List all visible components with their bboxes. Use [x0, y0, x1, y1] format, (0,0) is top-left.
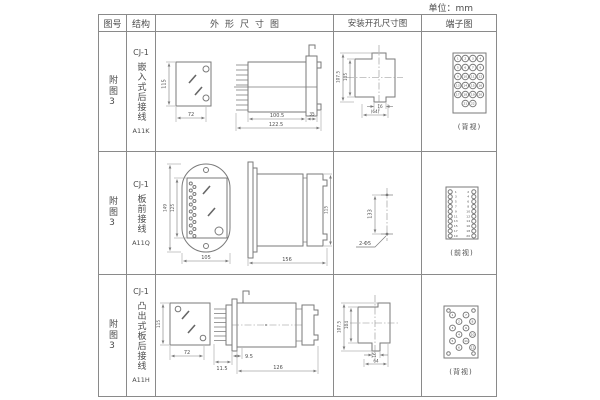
figure-number: 附图3 [106, 196, 119, 230]
svg-text:19: 19 [471, 93, 475, 97]
svg-text:20: 20 [478, 93, 482, 97]
header-row: 图号 结构 外形尺寸图 安装开孔尺寸图 端子图 [99, 15, 497, 32]
svg-text:2: 2 [464, 57, 466, 61]
svg-text:8: 8 [467, 205, 469, 209]
svg-text:12: 12 [478, 75, 482, 79]
install-cell: 133 2-Φ5 [334, 152, 422, 275]
svg-text:2: 2 [467, 190, 469, 194]
svg-text:9: 9 [465, 326, 467, 330]
install-drawing-a11q: 133 2-Φ5 [334, 152, 421, 274]
dim-notch: 16 [372, 352, 377, 358]
svg-text:4: 4 [467, 195, 469, 199]
view-label: (前视) [450, 248, 473, 257]
svg-text:19: 19 [454, 234, 458, 238]
svg-text:16: 16 [478, 84, 482, 88]
svg-text:6: 6 [464, 66, 466, 70]
svg-text:2: 2 [458, 320, 460, 324]
terminal-diagram-a11q: (前视) 1234567891011121314151617181920 [422, 152, 496, 274]
install-cell: 107.5 105 16 (64) [334, 32, 422, 152]
table-row-a11k: 附图3 CJ-1 嵌入式后接线 A11K 115 [99, 32, 497, 152]
dim-front-width: 72 [188, 112, 194, 118]
svg-text:8: 8 [479, 66, 481, 70]
terminal-cell: (背视) 172839410511612 [422, 275, 497, 397]
model-label: CJ-1 [133, 180, 149, 189]
svg-text:4: 4 [458, 333, 460, 337]
dim-hole-spacing: 133 [368, 209, 374, 219]
svg-text:8: 8 [472, 320, 474, 324]
table-row-a11q: 附图3 CJ-1 板前接线 A11Q [99, 152, 497, 275]
structure-label: 板前接线 [135, 194, 148, 234]
svg-text:6: 6 [458, 346, 460, 350]
front-view: 149 125 105 [163, 164, 231, 264]
figure-number: 附图3 [106, 319, 119, 353]
fig-no-cell: 附图3 [99, 32, 127, 152]
dim-depth-body: 100.5 [270, 113, 284, 119]
svg-text:11: 11 [471, 75, 475, 79]
dim-d2: 9.5 [245, 354, 253, 360]
svg-text:14: 14 [466, 219, 470, 223]
svg-text:15: 15 [454, 224, 458, 228]
dim-front-width: 105 [201, 255, 211, 261]
outline-drawing-a11h: 115 72 [156, 275, 333, 396]
svg-text:4: 4 [479, 57, 481, 61]
svg-text:3: 3 [452, 326, 454, 330]
unit-label: 单位：mm [428, 1, 473, 14]
dim-cutout-outer: 107.5 [337, 321, 342, 333]
svg-text:3: 3 [455, 195, 457, 199]
figure-number: 附图3 [106, 75, 119, 109]
svg-text:14: 14 [463, 84, 467, 88]
header-outline: 外形尺寸图 [156, 15, 334, 32]
dim-d1: 11.5 [216, 366, 227, 372]
structure-cell: CJ-1 板前接线 A11Q [127, 152, 156, 275]
structure-cell: CJ-1 嵌入式后接线 A11K [127, 32, 156, 152]
svg-text:22: 22 [471, 102, 475, 106]
type-code: A11Q [132, 239, 150, 247]
svg-text:5: 5 [455, 200, 457, 204]
svg-text:18: 18 [466, 229, 470, 233]
svg-text:10: 10 [471, 333, 475, 337]
svg-text:3: 3 [472, 57, 474, 61]
outline-cell: 115 72 1 [156, 32, 334, 152]
svg-text:7: 7 [472, 66, 474, 70]
svg-text:1: 1 [457, 57, 459, 61]
dim-cutout-outer: 107.5 [336, 71, 341, 83]
outline-cell: 115 72 [156, 275, 334, 397]
type-code: A11H [132, 376, 150, 384]
side-view: 156 115 [248, 162, 332, 266]
terminal-cell: (前视) 1234567891011121314151617181920 [422, 152, 497, 275]
dim-front-height: 115 [156, 320, 161, 328]
svg-text:1: 1 [452, 313, 454, 317]
svg-text:9: 9 [457, 75, 459, 79]
svg-text:17: 17 [456, 93, 460, 97]
svg-text:12: 12 [471, 346, 475, 350]
structure-cell: CJ-1 凸出式板后接线 A11H [127, 275, 156, 397]
dim-depth-total: 122.5 [269, 122, 283, 128]
svg-text:7: 7 [455, 205, 457, 209]
model-label: CJ-1 [133, 287, 149, 296]
dim-length: 156 [282, 257, 292, 263]
type-code: A11K [133, 127, 150, 135]
dim-cutout-inner: 105 [343, 73, 348, 81]
svg-text:9: 9 [455, 209, 457, 213]
dim-side-height: 115 [324, 206, 329, 214]
svg-text:18: 18 [463, 93, 467, 97]
svg-text:1: 1 [455, 190, 457, 194]
dim-cutout-width: (64) [371, 109, 380, 114]
svg-text:13: 13 [454, 219, 458, 223]
svg-text:20: 20 [466, 234, 470, 238]
fig-no-cell: 附图3 [99, 152, 127, 275]
spec-table: 图号 结构 外形尺寸图 安装开孔尺寸图 端子图 附图3 CJ-1 嵌入式后接线 … [98, 14, 497, 397]
dim-flange: 35 [309, 112, 315, 117]
dim-height-inner: 125 [170, 204, 175, 212]
outline-drawing-a11k: 115 72 1 [156, 32, 333, 151]
side-view: 9.5 11.5 126 [214, 291, 318, 374]
outline-drawing-a11q: 149 125 105 [156, 152, 333, 274]
outline-cell: 149 125 105 [156, 152, 334, 275]
svg-text:11: 11 [464, 339, 468, 343]
table-row-a11h: 附图3 CJ-1 凸出式板后接线 A11H 115 [99, 275, 497, 397]
header-terminal: 端子图 [422, 15, 497, 32]
svg-text:21: 21 [463, 102, 467, 106]
terminal-cell: (背视) 12345678910111213141516171819202122 [422, 32, 497, 152]
install-drawing-a11k: 107.5 105 16 (64) [334, 32, 421, 151]
svg-text:17: 17 [454, 229, 458, 233]
structure-label: 凸出式板后接线 [135, 301, 148, 371]
header-fig-no: 图号 [99, 15, 127, 32]
svg-text:13: 13 [456, 84, 460, 88]
model-label: CJ-1 [133, 48, 149, 57]
terminal-diagram-a11k: (背视) 12345678910111213141516171819202122 [422, 32, 496, 151]
dim-cutout-width: 64 [373, 359, 379, 364]
front-view: 115 72 [156, 303, 210, 360]
install-drawing-a11h: 107.5 104 16 64 [334, 275, 421, 396]
header-structure: 结构 [127, 15, 156, 32]
svg-text:12: 12 [466, 214, 470, 218]
install-cell: 107.5 104 16 64 [334, 275, 422, 397]
dim-front-width: 72 [184, 350, 190, 356]
structure-label: 嵌入式后接线 [135, 62, 148, 122]
dim-d3: 126 [273, 365, 283, 371]
svg-text:5: 5 [457, 66, 459, 70]
svg-text:10: 10 [463, 75, 467, 79]
dim-front-height: 115 [162, 79, 168, 89]
dim-cutout-inner: 104 [344, 321, 349, 329]
view-label: (背视) [449, 367, 472, 376]
side-view: 100.5 35 122.5 [234, 45, 321, 131]
svg-text:10: 10 [466, 209, 470, 213]
svg-text:11: 11 [454, 214, 458, 218]
svg-text:16: 16 [466, 224, 470, 228]
svg-text:6: 6 [467, 200, 469, 204]
svg-text:5: 5 [452, 339, 454, 343]
terminal-diagram-a11h: (背视) 172839410511612 [422, 275, 496, 396]
front-view: 115 72 [162, 62, 212, 122]
svg-text:7: 7 [465, 313, 467, 317]
view-label: (背视) [458, 122, 481, 131]
fig-no-cell: 附图3 [99, 275, 127, 397]
header-install: 安装开孔尺寸图 [334, 15, 422, 32]
svg-text:15: 15 [471, 84, 475, 88]
holes-label: 2-Φ5 [359, 241, 371, 247]
dim-height-outer: 149 [163, 204, 168, 212]
